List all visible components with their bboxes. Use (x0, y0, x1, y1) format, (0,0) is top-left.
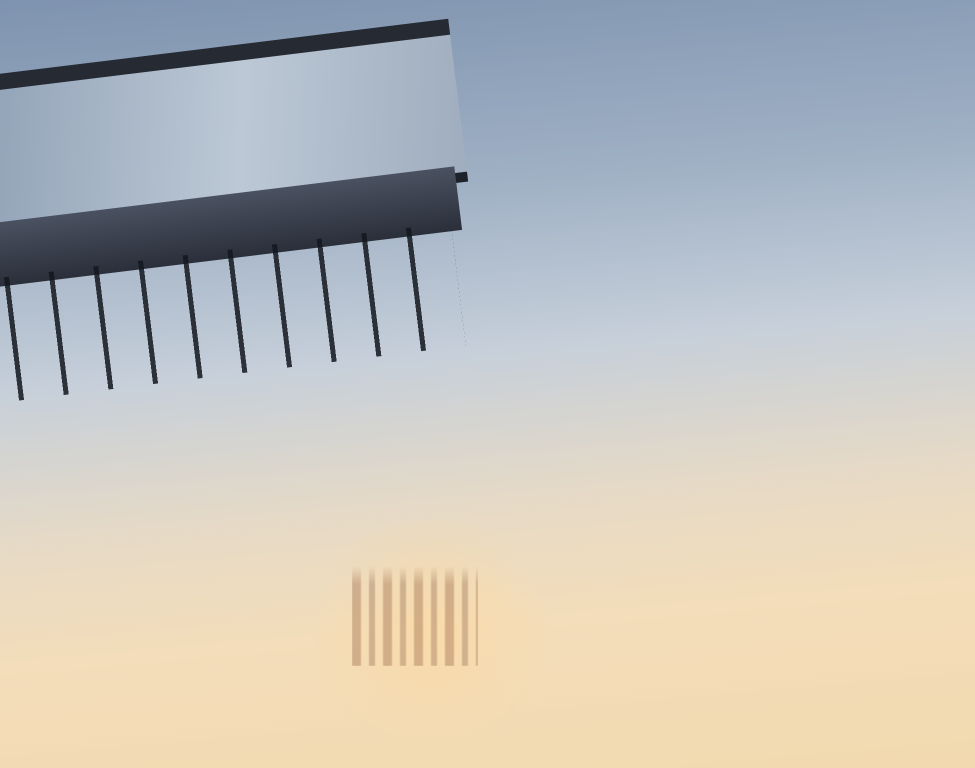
distant-skyline (352, 566, 478, 666)
listing-poster: ОСТРОВ. (0, 0, 975, 768)
building-photo (0, 0, 975, 768)
